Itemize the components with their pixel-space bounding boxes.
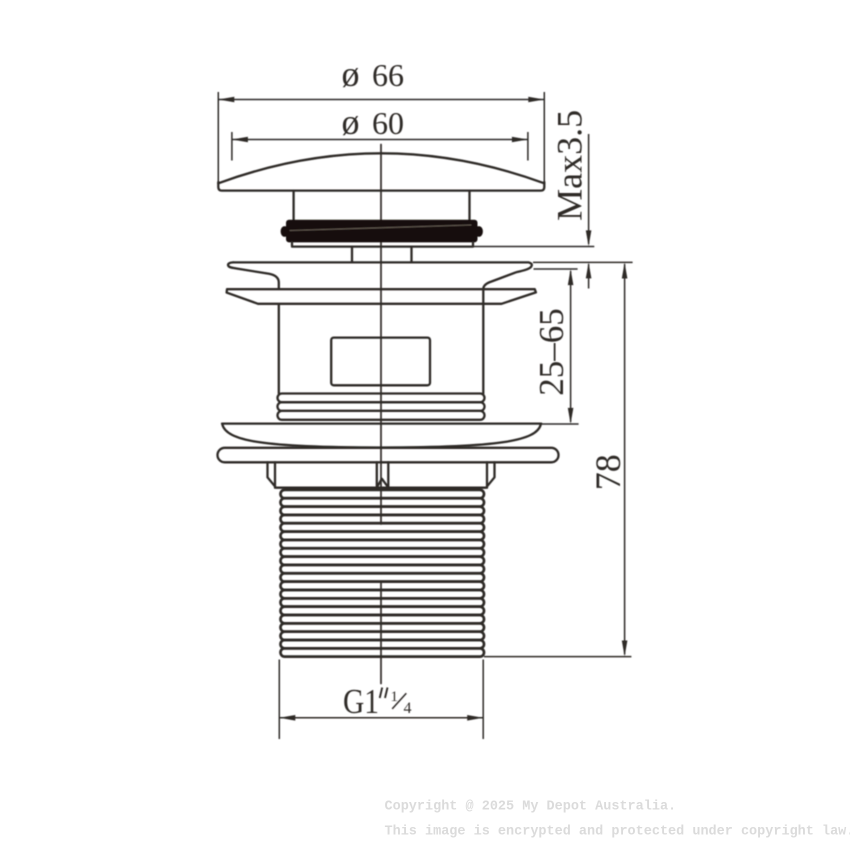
svg-text:This image is encrypted and pr: This image is encrypted and protected un… xyxy=(385,825,850,840)
svg-text:78: 78 xyxy=(588,454,628,490)
svg-text:G1: G1 xyxy=(343,682,379,721)
svg-text:Copyright @ 2025 My Depot Aust: Copyright @ 2025 My Depot Australia. xyxy=(385,800,677,815)
svg-text:1: 1 xyxy=(391,689,399,705)
svg-text:4: 4 xyxy=(404,700,412,717)
svg-text:Max3.5: Max3.5 xyxy=(549,110,589,221)
svg-text:ø66: ø66 xyxy=(342,54,405,94)
svg-text:25–65: 25–65 xyxy=(532,308,571,396)
svg-text:ø60: ø60 xyxy=(342,102,405,142)
